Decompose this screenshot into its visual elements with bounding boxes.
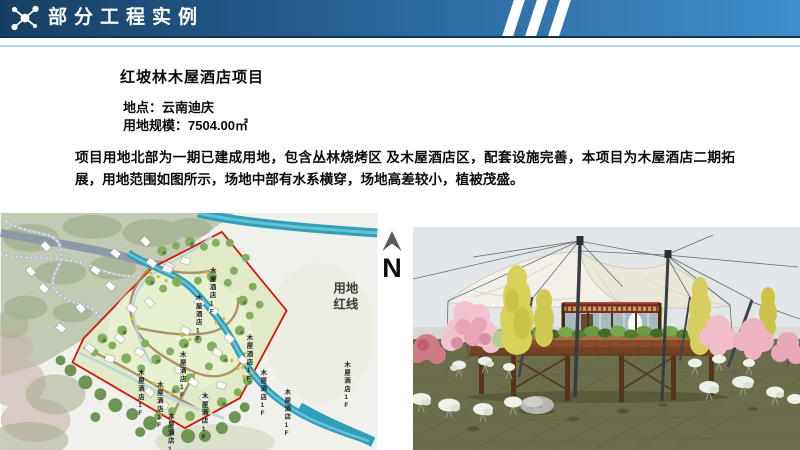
svg-text:红线: 红线: [333, 297, 358, 312]
project-meta: 地点：云南迪庆 用地规模：7504.00㎡: [123, 99, 248, 135]
molecule-icon: [10, 5, 40, 31]
north-arrow-icon: [381, 230, 403, 252]
rendering-image: [413, 227, 800, 450]
header-bar: 部分工程实例: [0, 0, 800, 38]
svg-text:用地: 用地: [332, 281, 358, 296]
site-plan-image: 木屋酒店1F 木屋酒店1F 木屋酒店1F 木屋酒店1F 木屋酒店1F 木屋酒店1…: [0, 213, 378, 450]
project-land-area: 用地规模：7504.00㎡: [123, 117, 248, 135]
header-stripe-icon: [525, 0, 548, 36]
page-title: 部分工程实例: [48, 0, 204, 36]
north-label: N: [377, 254, 407, 282]
header-stripe-icon: [502, 0, 525, 36]
svg-text:木屋酒店1F: 木屋酒店1F: [167, 411, 175, 450]
north-arrow: N: [377, 230, 407, 282]
header-rule-divider: [0, 45, 800, 47]
project-description: 项目用地北部为一期已建成用地，包含丛林烧烤区 及木屋酒店区，配套设施完善，本项目…: [75, 147, 735, 190]
slide: 部分工程实例 红坡林木屋酒店项目 地点：云南迪庆 用地规模：7504.00㎡ 项…: [0, 0, 800, 450]
header-stripe-icon: [548, 0, 571, 36]
project-location: 地点：云南迪庆: [123, 99, 248, 117]
project-title: 红坡林木屋酒店项目: [120, 66, 264, 87]
